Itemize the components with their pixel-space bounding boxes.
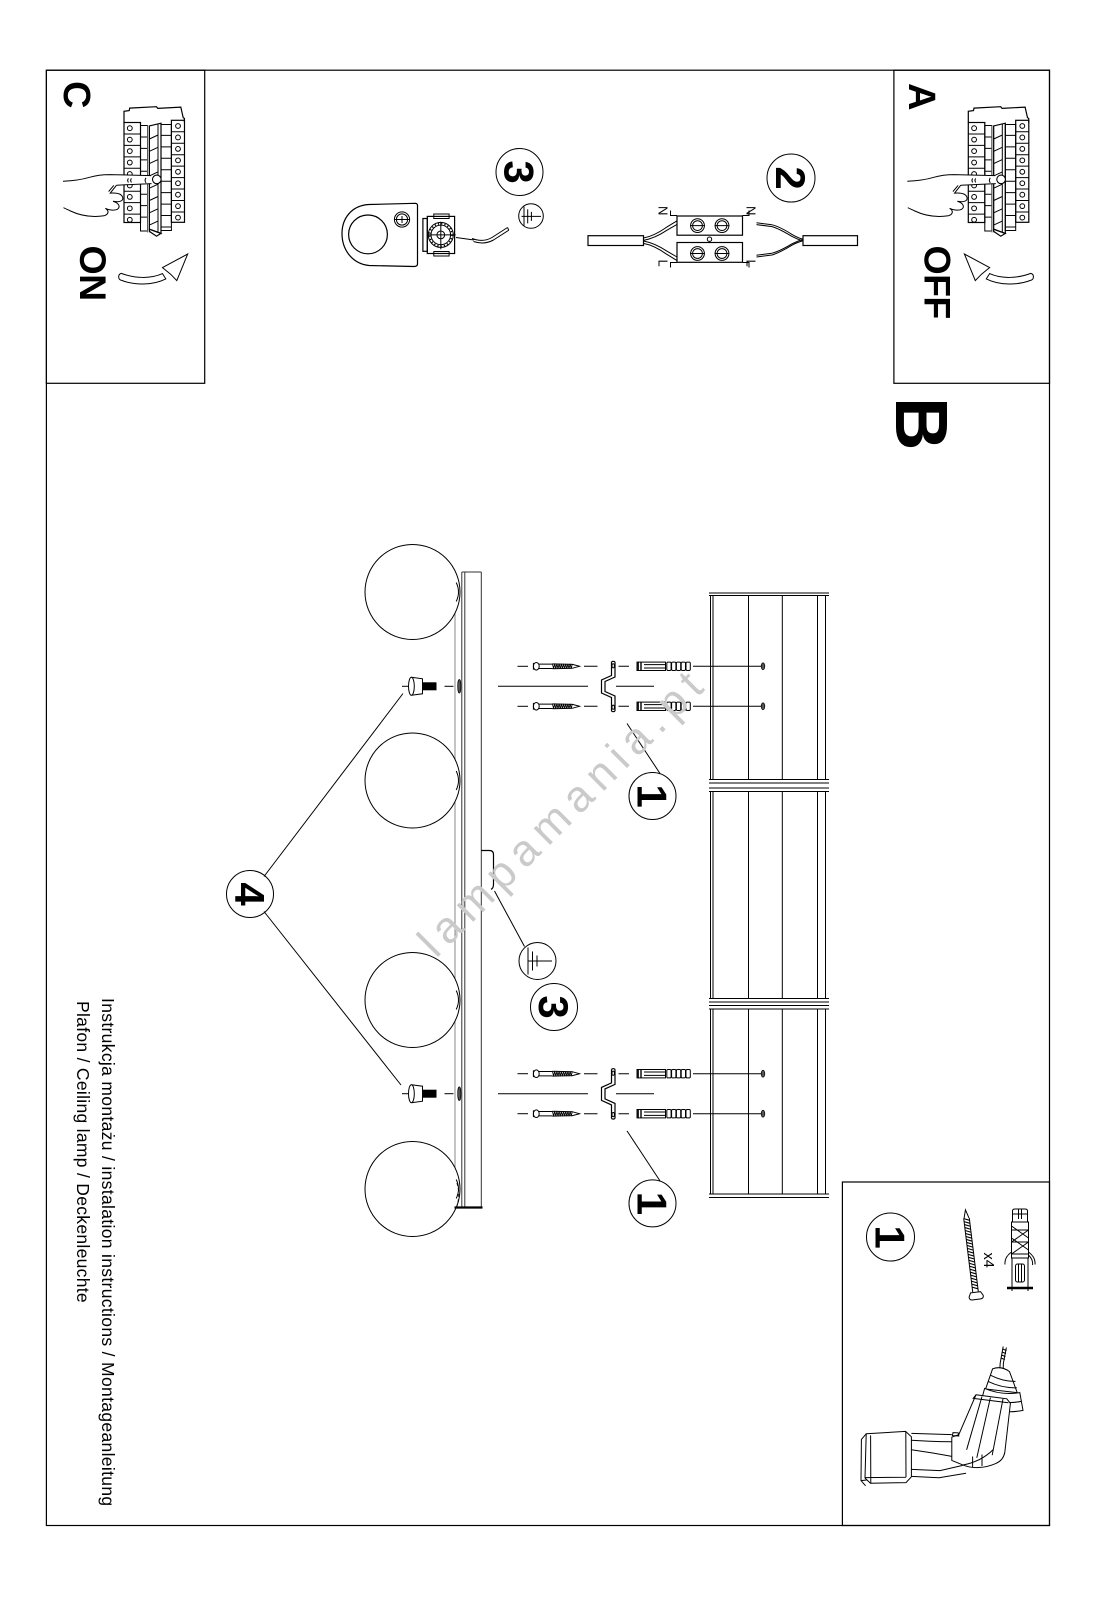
svg-text:3: 3 (530, 995, 577, 1018)
svg-text:OFF: OFF (917, 246, 959, 319)
svg-text:N: N (744, 206, 759, 215)
svg-text:x4: x4 (980, 1253, 996, 1268)
svg-text:L: L (656, 260, 671, 267)
svg-text:Instrukcja montażu / instalati: Instrukcja montażu / instalation instruc… (98, 998, 118, 1506)
svg-text:4: 4 (226, 882, 273, 906)
svg-text:A: A (900, 83, 942, 110)
svg-text:N: N (656, 206, 671, 215)
svg-text:B: B (880, 397, 963, 450)
svg-text:1: 1 (867, 1225, 914, 1248)
svg-text:ON: ON (72, 246, 114, 301)
svg-text:C: C (55, 81, 97, 108)
svg-text:L: L (744, 260, 759, 267)
svg-text:2: 2 (767, 166, 814, 189)
svg-text:3: 3 (496, 160, 543, 183)
svg-text:Plafon / Ceiling lamp / Decken: Plafon / Ceiling lamp / Deckenleuchte (73, 1001, 93, 1303)
